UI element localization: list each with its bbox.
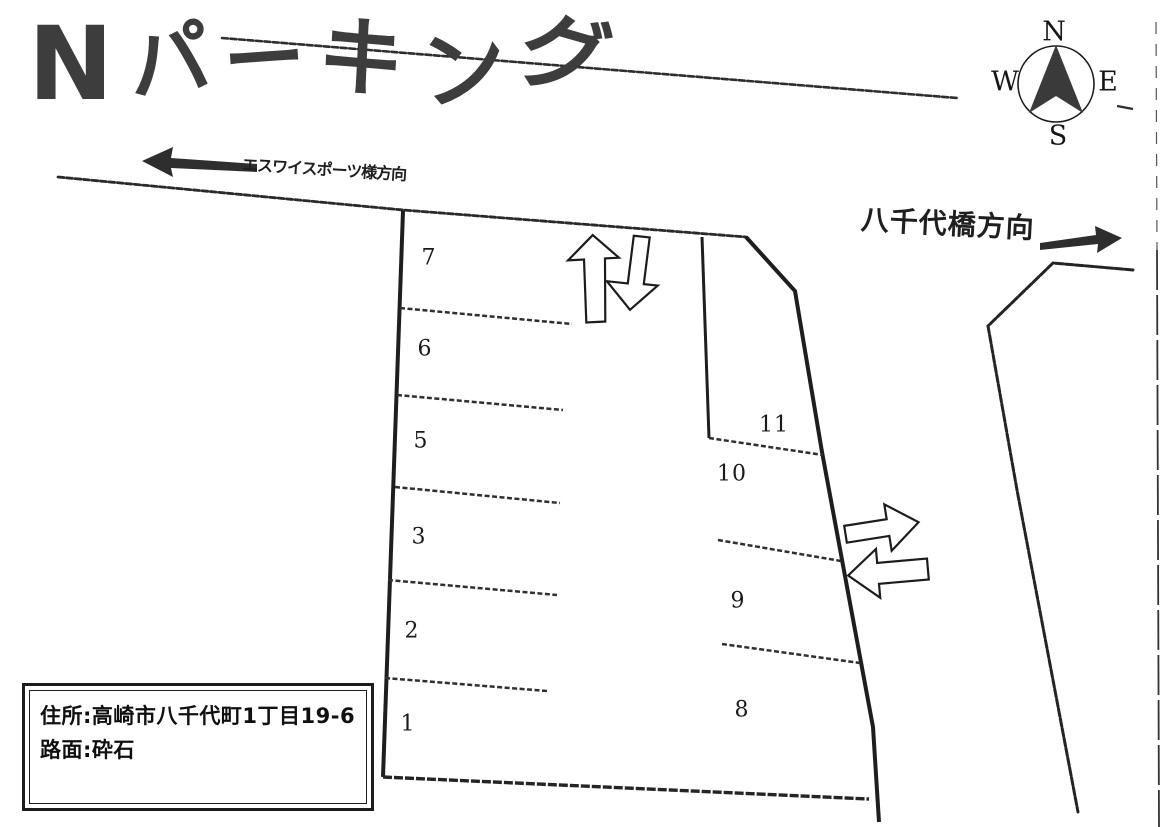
space-divider-10-9 xyxy=(718,540,841,561)
title-char: N xyxy=(28,14,113,116)
aisle-up-arrow-icon xyxy=(567,234,622,324)
space-divider-9-8 xyxy=(722,644,860,663)
space-divider-3-2 xyxy=(388,580,557,595)
aisle-down-arrow-icon xyxy=(604,233,662,312)
parking-space-label-10: 10 xyxy=(717,462,747,487)
space-divider-7-6 xyxy=(400,308,572,324)
space-divider-11-10 xyxy=(709,438,823,455)
lot-boundary-west xyxy=(383,211,403,777)
page-title: Nパーキング xyxy=(28,14,607,116)
title-char: キ xyxy=(310,7,414,111)
page-edge-line-bottom xyxy=(1157,250,1159,827)
arrow-east-icon xyxy=(1040,226,1122,253)
road-line-north-fragment xyxy=(1117,106,1133,109)
parking-space-label-5: 5 xyxy=(414,429,429,454)
compass-label-west: W xyxy=(991,67,1019,98)
title-char: パ xyxy=(123,17,216,110)
parking-space-label-3: 3 xyxy=(412,525,427,550)
parking-space-label-1: 1 xyxy=(401,712,416,737)
surface-separator: : xyxy=(83,738,92,762)
lot-boundary-south xyxy=(383,777,869,799)
info-box-inner-border: 住所:高崎市八千代町1丁目19-6 路面:砕石 xyxy=(29,690,367,804)
parking-space-label-2: 2 xyxy=(405,619,420,644)
compass-label-north: N xyxy=(1042,17,1066,48)
parking-space-label-6: 6 xyxy=(418,337,433,362)
parking-space-label-8: 8 xyxy=(735,698,750,723)
surface-value: 砕石 xyxy=(92,738,135,762)
space-divider-6-5 xyxy=(397,395,563,410)
parking-space-label-7: 7 xyxy=(422,246,437,271)
address-separator: : xyxy=(83,704,92,728)
surface-label: 路面 xyxy=(40,738,83,762)
aisle-inner-line xyxy=(702,237,709,438)
page-edge-line-top xyxy=(1156,22,1157,250)
surface-line: 路面:砕石 xyxy=(40,733,356,767)
parking-space-label-11: 11 xyxy=(759,413,789,438)
address-label: 住所 xyxy=(40,704,83,728)
exit-left-arrow-icon xyxy=(846,545,930,601)
compass-north-needle-icon xyxy=(1029,45,1083,113)
compass-label-east: E xyxy=(1098,67,1118,98)
entry-right-arrow-icon xyxy=(842,499,922,557)
parking-space-label-9: 9 xyxy=(731,589,746,614)
address-line: 住所:高崎市八千代町1丁目19-6 xyxy=(40,699,356,733)
title-char: ン xyxy=(416,20,513,117)
title-char: グ xyxy=(510,2,619,111)
arrow-west-icon xyxy=(142,147,257,177)
compass-label-south: S xyxy=(1049,121,1068,152)
address-value: 高崎市八千代町1丁目19-6 xyxy=(92,704,355,728)
road-line-east xyxy=(988,263,1133,812)
space-divider-5-3 xyxy=(395,487,560,503)
title-char: ー xyxy=(221,17,309,105)
space-divider-2-1 xyxy=(385,678,547,691)
info-box: 住所:高崎市八千代町1丁目19-6 路面:砕石 xyxy=(22,683,374,811)
parking-map-page: Nパーキング N W E S エスワイスポーツ様方向 八千代橋方向 7 6 5 … xyxy=(0,0,1176,827)
